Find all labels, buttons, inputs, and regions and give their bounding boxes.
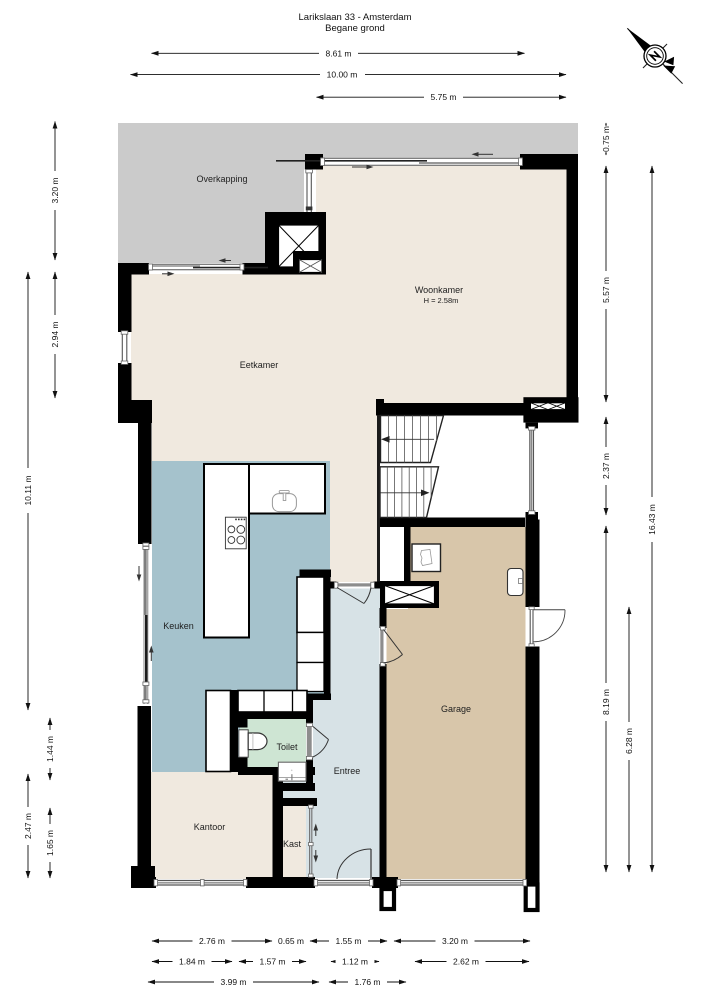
svg-text:1.65 m: 1.65 m — [45, 830, 55, 856]
svg-text:0.65 m: 0.65 m — [278, 936, 304, 946]
svg-text:1.44 m: 1.44 m — [45, 736, 55, 762]
svg-text:2.37 m: 2.37 m — [601, 453, 611, 479]
svg-text:5.75 m: 5.75 m — [431, 92, 457, 102]
svg-text:1.57 m: 1.57 m — [260, 957, 286, 967]
svg-text:2.94 m: 2.94 m — [50, 322, 60, 348]
svg-text:H = 2.58m: H = 2.58m — [424, 296, 459, 305]
svg-text:0.75 m: 0.75 m — [601, 126, 611, 152]
svg-text:10.00 m: 10.00 m — [327, 70, 358, 80]
svg-text:Keuken: Keuken — [163, 621, 194, 631]
svg-text:Larikslaan 33 - Amsterdam: Larikslaan 33 - Amsterdam — [299, 12, 412, 23]
svg-text:10.11 m: 10.11 m — [23, 475, 33, 505]
svg-text:5.57 m: 5.57 m — [601, 277, 611, 303]
svg-text:Begane grond: Begane grond — [325, 23, 385, 34]
svg-text:2.62 m: 2.62 m — [453, 957, 479, 967]
svg-text:2.47 m: 2.47 m — [23, 813, 33, 839]
svg-text:1.12 m: 1.12 m — [342, 957, 368, 967]
svg-text:8.19 m: 8.19 m — [601, 689, 611, 715]
svg-text:3.99 m: 3.99 m — [221, 977, 247, 987]
svg-text:3.20 m: 3.20 m — [50, 178, 60, 204]
svg-text:8.61 m: 8.61 m — [326, 48, 352, 58]
svg-text:1.76 m: 1.76 m — [355, 977, 381, 987]
svg-text:6.28 m: 6.28 m — [624, 728, 634, 754]
svg-text:1.55 m: 1.55 m — [336, 936, 362, 946]
svg-text:Woonkamer: Woonkamer — [415, 285, 463, 295]
svg-text:Kantoor: Kantoor — [194, 822, 226, 832]
svg-text:1.84 m: 1.84 m — [179, 957, 205, 967]
svg-text:Eetkamer: Eetkamer — [240, 360, 279, 370]
svg-text:Toilet: Toilet — [276, 742, 298, 752]
svg-text:Garage: Garage — [441, 704, 471, 714]
svg-text:Entree: Entree — [334, 766, 361, 776]
svg-text:16.43 m: 16.43 m — [647, 504, 657, 535]
svg-text:3.20 m: 3.20 m — [442, 936, 468, 946]
svg-text:Kast: Kast — [283, 839, 302, 849]
svg-text:2.76 m: 2.76 m — [199, 936, 225, 946]
svg-text:Overkapping: Overkapping — [196, 174, 247, 184]
